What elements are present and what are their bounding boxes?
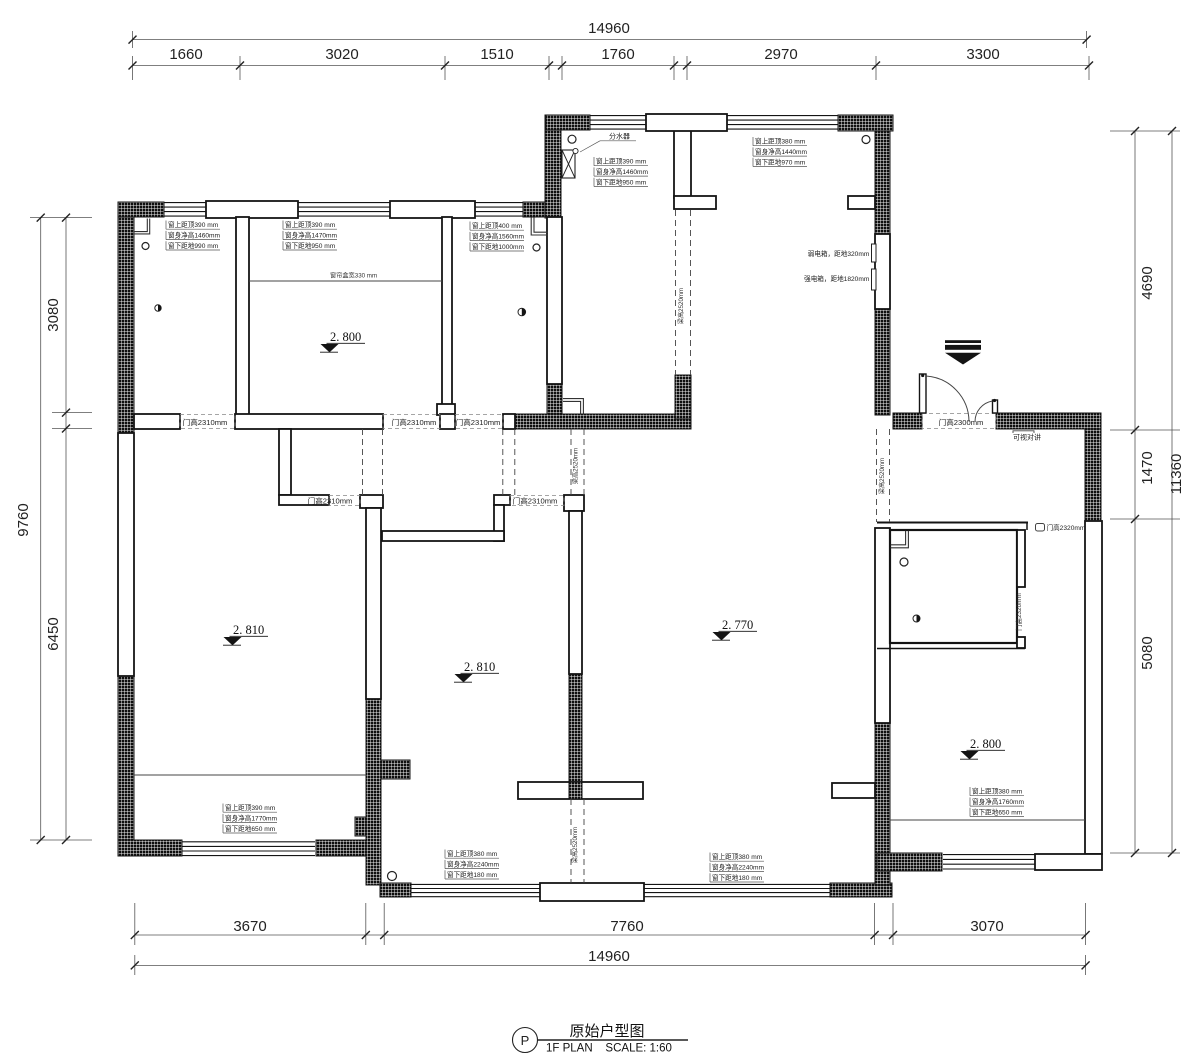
svg-text:门高2320mm: 门高2320mm [1047,523,1086,532]
svg-text:窗上距顶390 mm: 窗上距顶390 mm [168,220,219,229]
svg-text:14960: 14960 [588,20,630,37]
svg-text:窗下距地950 mm: 窗下距地950 mm [285,241,336,250]
svg-text:9760: 9760 [15,503,32,536]
svg-text:6450: 6450 [45,617,62,650]
svg-text:门高2310mm: 门高2310mm [308,495,353,505]
svg-text:2. 770: 2. 770 [722,618,753,632]
svg-text:窗下距地970 mm: 窗下距地970 mm [755,157,806,166]
svg-text:3300: 3300 [966,46,999,63]
svg-text:4690: 4690 [1139,266,1156,299]
svg-text:窗下距地180 mm: 窗下距地180 mm [712,873,763,882]
svg-text:14960: 14960 [588,948,630,965]
svg-text:梁高2520mm: 梁高2520mm [677,288,685,324]
svg-text:窗上距顶400 mm: 窗上距顶400 mm [472,221,523,230]
svg-text:窗身净高1770mm: 窗身净高1770mm [225,813,278,822]
svg-text:窗上距顶390 mm: 窗上距顶390 mm [285,220,336,229]
svg-text:窗上距顶380 mm: 窗上距顶380 mm [712,852,763,861]
svg-text:门高2320mm: 门高2320mm [1014,593,1023,631]
svg-text:强电箱，距地1820mm: 强电箱，距地1820mm [804,274,873,283]
svg-text:原始户型图: 原始户型图 [569,1023,644,1040]
svg-text:窗上距顶390 mm: 窗上距顶390 mm [225,803,276,812]
svg-text:窗身净高1760mm: 窗身净高1760mm [972,797,1025,806]
svg-text:3670: 3670 [233,918,266,935]
svg-text:门高2310mm: 门高2310mm [456,417,501,427]
svg-text:梁高2520mm: 梁高2520mm [878,458,886,494]
svg-text:窗身净高1560mm: 窗身净高1560mm [472,231,525,240]
svg-text:窗上距顶380 mm: 窗上距顶380 mm [447,849,498,858]
svg-text:弱电箱，距地320mm: 弱电箱，距地320mm [808,249,873,258]
svg-text:门高2310mm: 门高2310mm [392,417,437,427]
svg-text:可视对讲: 可视对讲 [1013,433,1041,442]
svg-text:门高2300mm: 门高2300mm [939,417,984,427]
svg-text:窗下距地180 mm: 窗下距地180 mm [447,870,498,879]
svg-text:窗帘盒宽330 mm: 窗帘盒宽330 mm [330,272,377,280]
svg-text:2. 800: 2. 800 [330,330,361,344]
svg-text:窗身净高1470mm: 窗身净高1470mm [285,230,338,239]
svg-text:1660: 1660 [169,46,202,63]
svg-text:1510: 1510 [480,46,513,63]
svg-text:窗下距地950 mm: 窗下距地950 mm [596,177,647,186]
svg-text:P: P [521,1033,530,1048]
svg-text:门高2310mm: 门高2310mm [513,495,558,505]
svg-text:3080: 3080 [45,298,62,331]
svg-text:窗上距顶390 mm: 窗上距顶390 mm [596,157,647,166]
svg-text:3020: 3020 [325,46,358,63]
svg-text:1F PLAN SCALE: 1:60: 1F PLAN SCALE: 1:60 [546,1043,672,1055]
svg-text:窗下距地1000mm: 窗下距地1000mm [472,242,525,251]
svg-text:窗下距地990 mm: 窗下距地990 mm [168,241,219,250]
svg-text:窗身净高1460mm: 窗身净高1460mm [168,230,221,239]
svg-text:窗身净高1440mm: 窗身净高1440mm [755,147,808,156]
svg-text:2. 810: 2. 810 [233,623,264,637]
svg-text:5080: 5080 [1139,636,1156,669]
svg-text:窗上距顶380 mm: 窗上距顶380 mm [972,787,1023,796]
svg-text:7760: 7760 [610,918,643,935]
svg-text:2. 800: 2. 800 [970,737,1001,751]
svg-text:2. 810: 2. 810 [464,660,495,674]
svg-text:3070: 3070 [970,918,1003,935]
svg-text:门高2310mm: 门高2310mm [183,417,228,427]
svg-text:1760: 1760 [601,46,634,63]
svg-text:窗上距顶380 mm: 窗上距顶380 mm [755,137,806,146]
svg-text:窗身净高2240mm: 窗身净高2240mm [712,862,765,871]
svg-text:11360: 11360 [1168,454,1185,495]
svg-text:1470: 1470 [1139,451,1156,484]
svg-text:2970: 2970 [764,46,797,63]
svg-text:窗身净高2240mm: 窗身净高2240mm [447,859,500,868]
svg-text:窗下距地650 mm: 窗下距地650 mm [225,824,276,833]
svg-text:梁高2520mm: 梁高2520mm [571,827,579,863]
svg-text:窗下距地650 mm: 窗下距地650 mm [972,807,1023,816]
svg-text:窗身净高1460mm: 窗身净高1460mm [596,167,649,176]
svg-text:梁高2520mm: 梁高2520mm [572,448,580,484]
svg-text:分水器: 分水器 [609,132,630,141]
